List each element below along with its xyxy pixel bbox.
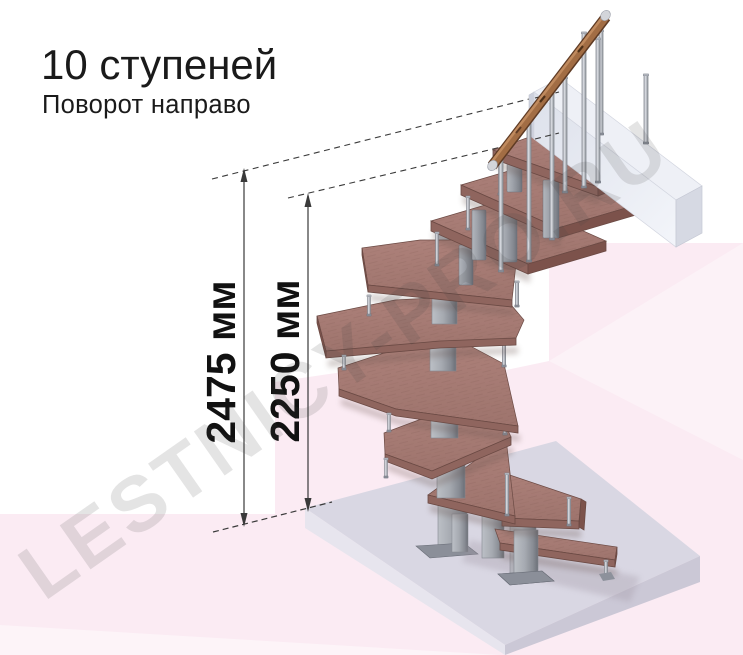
svg-text:Поворот направо: Поворот направо xyxy=(42,91,251,119)
svg-text:10 ступеней: 10 ступеней xyxy=(41,41,277,88)
